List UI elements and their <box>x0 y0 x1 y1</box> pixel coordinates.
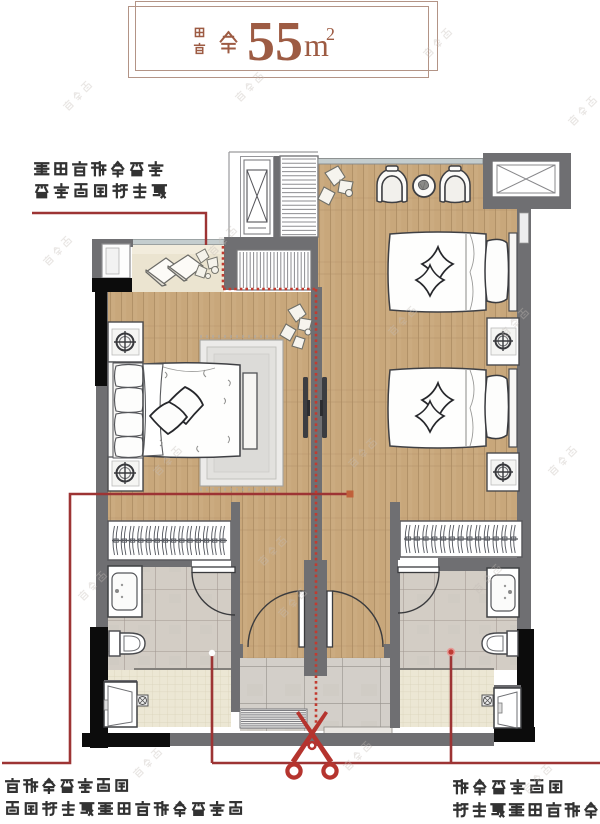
svg-text:55: 55 <box>247 11 303 73</box>
svg-text:2: 2 <box>326 24 335 44</box>
